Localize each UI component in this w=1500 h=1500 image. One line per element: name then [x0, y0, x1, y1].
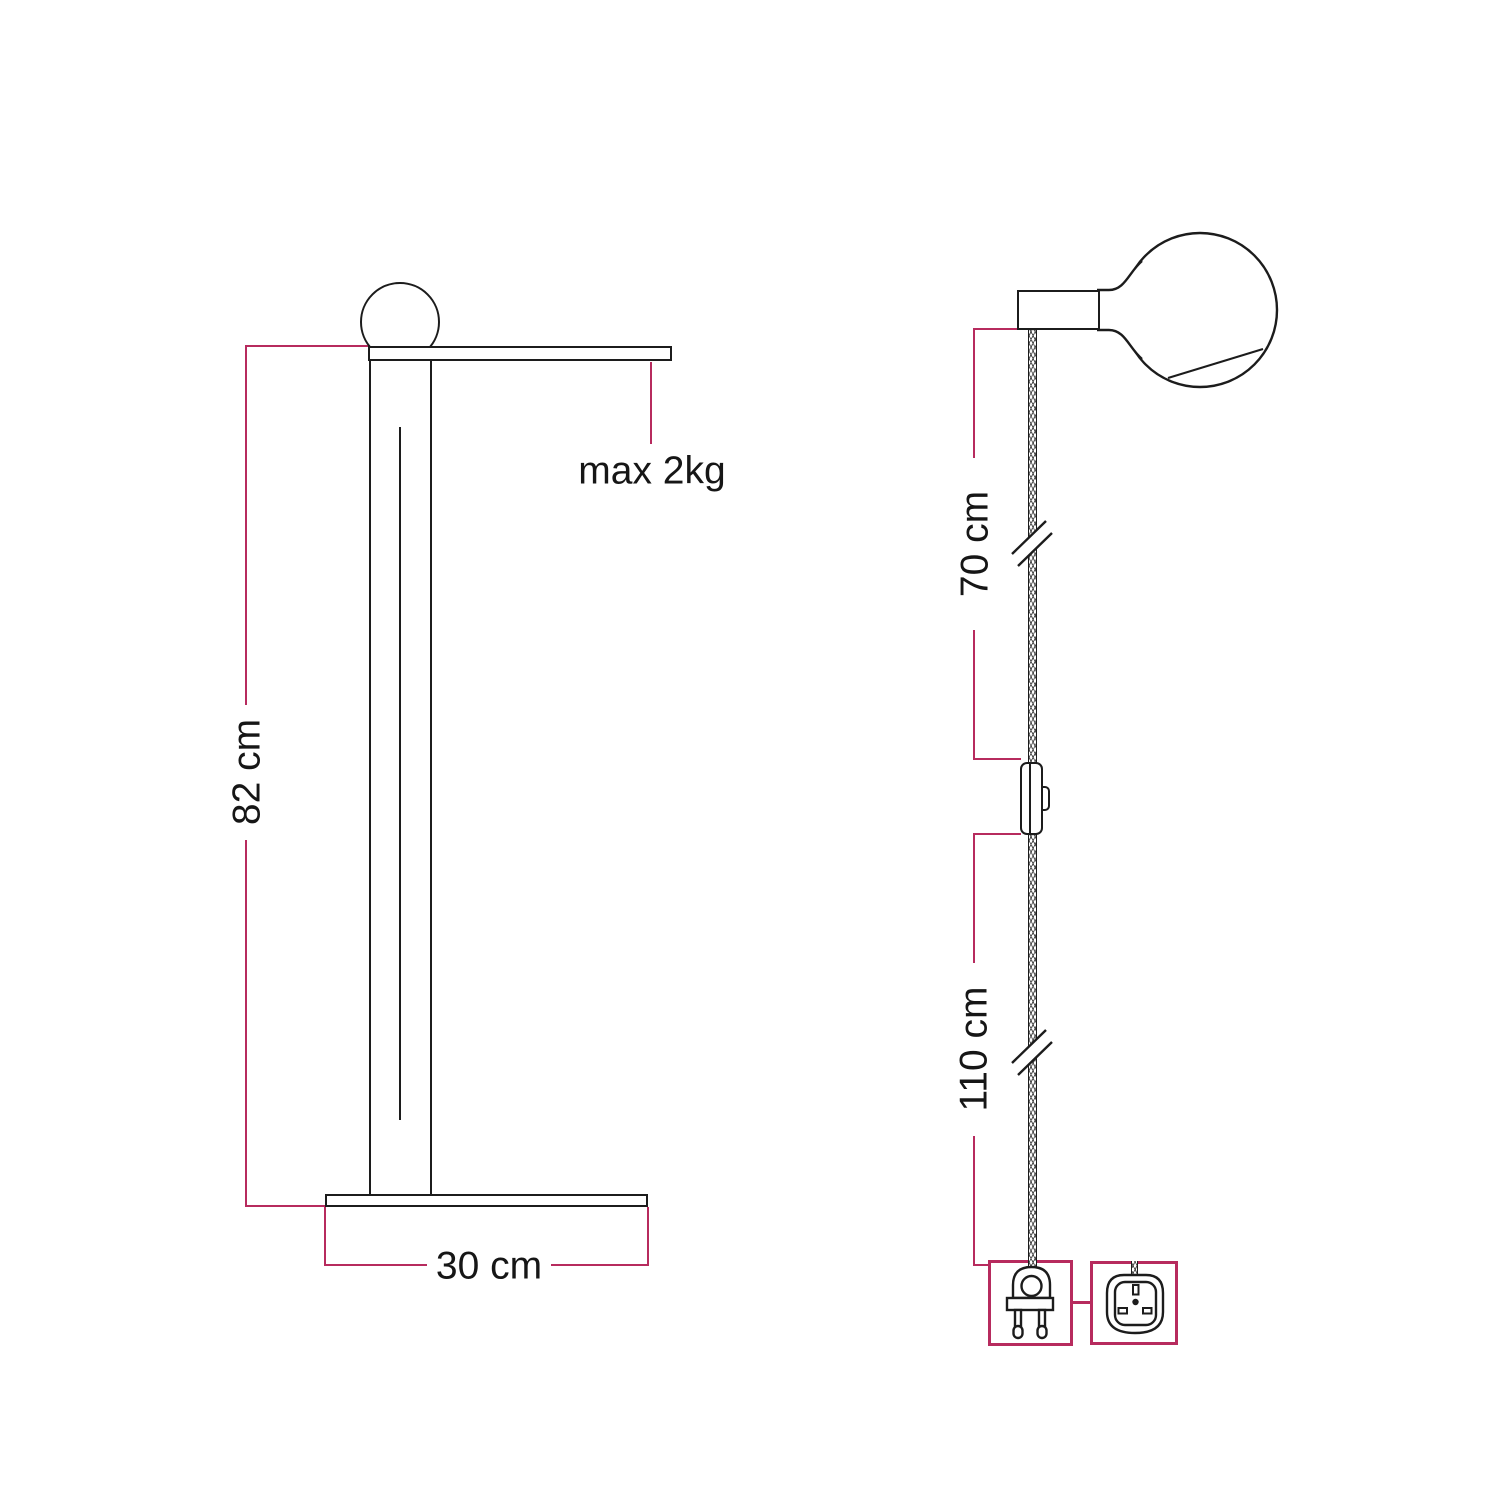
upper-cord-line-upper: [973, 328, 975, 458]
cord-break-mark-lower: [1004, 1019, 1060, 1087]
lower-cord-line-lower: [973, 1136, 975, 1266]
inline-switch-icon: [1020, 762, 1043, 835]
cord-break-mark-upper: [1004, 510, 1060, 578]
base-width-label: 30 cm: [436, 1247, 542, 1286]
height-dimension-tick-top: [245, 345, 368, 347]
lamp-arm: [368, 346, 672, 361]
lamp-socket: [1017, 290, 1100, 330]
upper-cord-tick-bottom: [973, 758, 1021, 760]
lamp-dimension-diagram: 82 cm 30 cm max 2kg: [0, 0, 1500, 1500]
lower-cord-line-upper: [973, 833, 975, 963]
uk-plug-icon: [1088, 1258, 1182, 1348]
height-dimension-label: 82 cm: [228, 719, 267, 825]
height-dimension-tick-bottom: [245, 1205, 327, 1207]
height-dimension-line-upper: [245, 345, 247, 705]
lamp-base: [325, 1194, 648, 1207]
lamp-pole-slot: [399, 427, 401, 1120]
max-load-label: max 2kg: [578, 452, 725, 491]
lower-cord-label: 110 cm: [955, 987, 994, 1112]
two-pin-plug-icon: [985, 1256, 1085, 1348]
upper-cord-label: 70 cm: [956, 491, 995, 597]
height-dimension-line-lower: [245, 840, 247, 1207]
base-width-line-left: [324, 1264, 427, 1266]
lower-cord-tick-top: [973, 833, 1021, 835]
base-width-extension-right: [647, 1207, 649, 1266]
switch-seam: [1029, 764, 1031, 833]
max-load-leader-line: [650, 362, 652, 444]
globe-bulb-icon: [1095, 228, 1295, 398]
base-width-extension-left: [324, 1207, 326, 1266]
base-width-line-right: [551, 1264, 649, 1266]
upper-cord-line-lower: [973, 630, 975, 760]
